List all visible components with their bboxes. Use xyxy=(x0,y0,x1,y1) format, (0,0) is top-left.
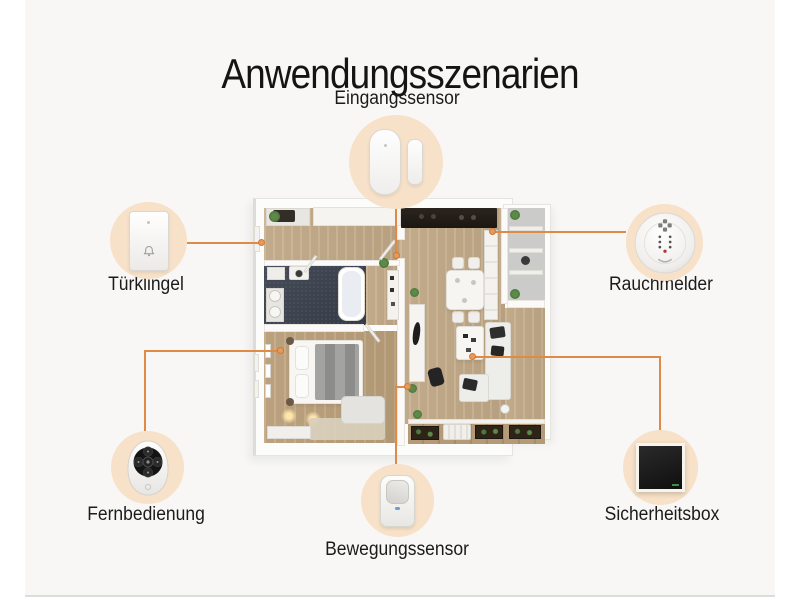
window-left-bedroom-2 xyxy=(254,380,259,398)
entrance-sensor-halo xyxy=(349,115,443,209)
planter-box xyxy=(509,425,541,439)
dining-table xyxy=(446,270,484,310)
connector-remote-horizontal xyxy=(144,350,280,352)
coffee-table-items xyxy=(463,334,468,338)
bathroom-shelf xyxy=(267,267,285,280)
wall-balcony-step xyxy=(507,300,545,308)
sun-lounger xyxy=(443,424,471,440)
remote-control-halo xyxy=(111,431,184,504)
plant xyxy=(269,211,280,222)
bedside-lamp-glow xyxy=(281,408,297,424)
connector-endpoint xyxy=(489,228,496,235)
security-box-halo xyxy=(623,430,698,505)
dining-chair xyxy=(468,257,480,269)
connector-securitybox-vertical xyxy=(659,357,661,430)
sensor-main-pill xyxy=(369,129,401,195)
security-box-icon xyxy=(636,443,685,492)
connector-securitybox-horizontal xyxy=(473,356,661,358)
motion-sensor-halo xyxy=(361,464,434,537)
connector-endpoint xyxy=(277,347,284,354)
sofa-cushion-dark xyxy=(491,345,505,356)
floor-lamp xyxy=(500,404,510,414)
balcony-bottom-rail xyxy=(408,419,545,424)
dining-chair xyxy=(468,311,480,323)
kitchen-counter-dark xyxy=(401,208,497,228)
connector-smoke-detector xyxy=(494,231,626,233)
connector-endpoint xyxy=(393,252,400,259)
plant xyxy=(510,289,520,299)
bed-post xyxy=(286,337,294,345)
bathroom-sink xyxy=(269,306,281,318)
led-indicator xyxy=(395,507,400,510)
bed-blanket xyxy=(315,344,359,400)
plant xyxy=(413,410,422,419)
pir-window xyxy=(386,480,409,504)
connector-entrance-sensor xyxy=(395,208,397,254)
planter-box xyxy=(475,425,503,439)
kitchen-counter-white xyxy=(313,207,401,226)
connector-doorbell xyxy=(187,242,261,244)
dining-table-setting xyxy=(455,278,460,283)
planter-box xyxy=(411,426,439,440)
label-motion-sensor: Bewegungssensor xyxy=(325,539,469,561)
bedroom-loveseat xyxy=(341,396,385,424)
bathroom-sink xyxy=(269,290,281,302)
motion-sensor-icon xyxy=(380,475,415,527)
sofa-cushion-dark xyxy=(489,326,505,339)
connector-endpoint xyxy=(469,353,476,360)
connector-endpoint xyxy=(258,239,265,246)
window-left-bedroom xyxy=(254,354,259,372)
wall-bath-bottom xyxy=(264,324,364,332)
bedroom-dresser xyxy=(267,426,311,439)
door-window-sensor-icon xyxy=(369,129,423,195)
label-entrance-sensor: Eingangssensor xyxy=(334,88,459,110)
bathtub-basin xyxy=(342,271,361,317)
plant xyxy=(510,210,520,220)
smoke-detector-halo xyxy=(626,204,703,281)
balcony-shelf xyxy=(509,270,543,275)
bed-post xyxy=(286,398,294,406)
connector-motion-vertical xyxy=(395,387,397,464)
doorbell-halo xyxy=(110,202,187,279)
connector-endpoint xyxy=(404,383,411,390)
smoke-detector-icon xyxy=(633,211,697,275)
bed-pillow xyxy=(295,346,309,370)
doorbell-icon xyxy=(129,211,169,271)
kitchen-hob-burners xyxy=(419,214,424,219)
dining-chair xyxy=(452,311,464,323)
bed-pillow xyxy=(295,374,309,398)
bell-icon xyxy=(142,245,155,257)
sensor-magnet-pill xyxy=(407,139,423,185)
remote-control-icon xyxy=(125,438,171,498)
wall-picture-frame xyxy=(265,384,271,398)
balcony-top-floor xyxy=(507,208,545,302)
hall-console-decor xyxy=(390,276,394,280)
bottom-divider xyxy=(25,595,775,597)
connector-remote-vertical xyxy=(144,351,146,431)
balcony-pot xyxy=(521,256,530,265)
wall-balcony-top-divider xyxy=(501,208,508,304)
wardrobe xyxy=(484,230,498,320)
apartment-floorplan xyxy=(253,196,553,458)
application-scenarios-infographic: Anwendungsszenarien xyxy=(0,0,800,600)
dining-chair xyxy=(452,257,464,269)
label-remote-control: Fernbedienung xyxy=(87,504,205,526)
wall-picture-frame xyxy=(265,364,271,378)
room-living-extension-floor xyxy=(505,308,545,424)
label-security-box: Sicherheitsbox xyxy=(605,504,720,526)
plant xyxy=(410,288,419,297)
balcony-shelf xyxy=(509,248,543,253)
